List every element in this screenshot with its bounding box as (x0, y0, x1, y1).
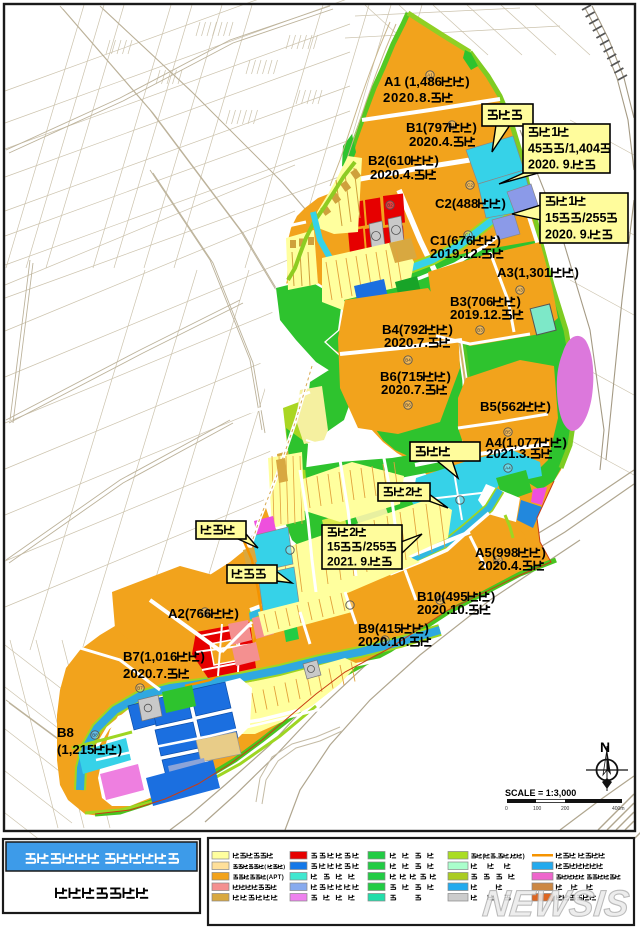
svg-text:): ) (563, 435, 567, 450)
svg-text:2020.7.: 2020.7. (123, 666, 167, 681)
svg-text:): ) (523, 853, 525, 860)
svg-text:NEWSIS: NEWSIS (481, 882, 632, 924)
svg-text:): ) (283, 865, 285, 871)
svg-text:100: 100 (533, 806, 542, 812)
svg-text:): ) (201, 649, 205, 664)
svg-text:B2: B2 (387, 203, 393, 208)
svg-text:15: 15 (327, 540, 341, 554)
svg-text:B4: B4 (405, 358, 411, 363)
svg-text:2020.4.: 2020.4. (409, 134, 453, 149)
svg-text:1: 1 (568, 194, 575, 208)
svg-text:): ) (425, 621, 429, 636)
svg-text:A2(766: A2(766 (168, 606, 211, 621)
svg-text:2020.10.: 2020.10. (358, 634, 409, 649)
svg-text:1: 1 (551, 125, 558, 139)
svg-text:B3: B3 (477, 328, 483, 333)
svg-text:SCALE = 1:3,000: SCALE = 1:3,000 (505, 788, 576, 798)
svg-text:/1,404: /1,404 (565, 141, 600, 155)
svg-text:/255: /255 (363, 540, 387, 554)
svg-text:): ) (447, 369, 451, 384)
svg-text:B8: B8 (57, 725, 74, 740)
svg-text:2019.12.: 2019.12. (450, 307, 501, 322)
svg-text:A1 (1,486: A1 (1,486 (384, 74, 442, 89)
svg-text:2021. 9.: 2021. 9. (327, 554, 370, 568)
svg-text:B2(610: B2(610 (368, 153, 411, 168)
svg-text:): ) (547, 399, 551, 414)
svg-text:/255: /255 (582, 211, 606, 225)
svg-text:2020.8.: 2020.8. (383, 90, 431, 105)
svg-text:N: N (600, 739, 610, 755)
svg-text:A3: A3 (517, 288, 523, 293)
svg-text:B8: B8 (92, 733, 98, 738)
svg-text:2019.12.: 2019.12. (430, 246, 481, 261)
svg-text:2: 2 (349, 525, 356, 539)
svg-text:2020.4.: 2020.4. (478, 558, 522, 573)
svg-text:15: 15 (545, 211, 559, 225)
svg-text:B1(797: B1(797 (406, 120, 449, 135)
svg-text:): ) (542, 545, 546, 560)
svg-text:45: 45 (528, 141, 542, 155)
svg-text:(APT): (APT) (267, 875, 284, 881)
svg-text:2021.3.: 2021.3. (486, 446, 530, 461)
svg-text:B5: B5 (505, 430, 511, 435)
svg-text:C2(488: C2(488 (435, 196, 478, 211)
svg-text:2: 2 (405, 485, 412, 499)
svg-text:): ) (118, 742, 122, 757)
svg-text:,: , (496, 853, 498, 860)
svg-text:): ) (465, 74, 469, 89)
svg-text:B7: B7 (137, 686, 143, 691)
svg-text:): ) (575, 265, 579, 280)
svg-text:B6: B6 (405, 403, 411, 408)
svg-text:): ) (491, 589, 495, 604)
svg-text:2020.7.: 2020.7. (384, 335, 428, 350)
svg-text:): ) (235, 606, 239, 621)
svg-text:): ) (502, 196, 506, 211)
svg-text:): ) (473, 120, 477, 135)
svg-text:2020. 9.: 2020. 9. (528, 158, 573, 172)
svg-text:A4: A4 (505, 466, 511, 471)
svg-text:2020.10.: 2020.10. (417, 602, 468, 617)
svg-text:2020. 9.: 2020. 9. (545, 228, 590, 242)
svg-text:(1,215: (1,215 (57, 742, 94, 757)
svg-text:): ) (435, 153, 439, 168)
svg-text:0: 0 (505, 806, 508, 812)
svg-text:(: ( (264, 865, 266, 871)
svg-text:): ) (517, 294, 521, 309)
svg-text:): ) (449, 322, 453, 337)
svg-text:B7(1,016: B7(1,016 (123, 649, 177, 664)
svg-text:B5(562: B5(562 (480, 399, 523, 414)
svg-text:2020.7.: 2020.7. (381, 382, 425, 397)
svg-text:): ) (497, 233, 501, 248)
svg-text:A3(1,301: A3(1,301 (497, 265, 551, 280)
svg-text:400m: 400m (612, 806, 625, 812)
svg-text:200: 200 (561, 806, 570, 812)
svg-text:C2: C2 (467, 183, 473, 188)
svg-text:2020.4.: 2020.4. (370, 167, 414, 182)
